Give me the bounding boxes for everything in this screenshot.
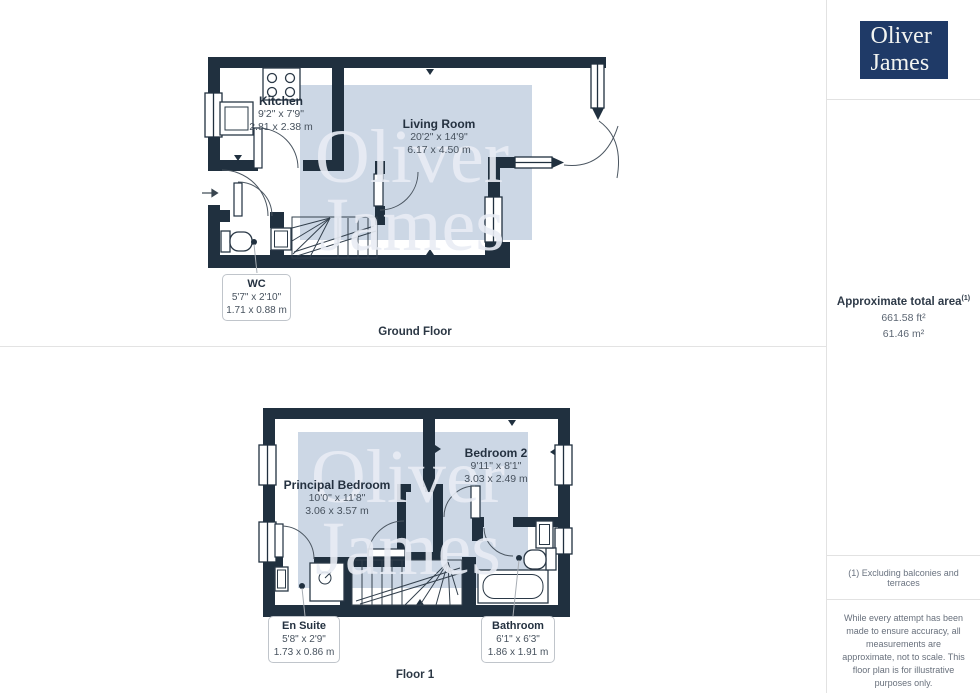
room-dim-metric: 2.81 x 2.38 m [211,121,351,134]
room-name: WC [223,278,290,291]
room-name: Principal Bedroom [267,478,407,492]
ensuite-callout: En Suite 5'8" x 2'9" 1.73 x 0.86 m [268,616,340,663]
room-dim-metric: 3.06 x 3.57 m [267,505,407,518]
room-dim-imperial: 5'7" x 2'10" [223,291,290,304]
total-area-title-text: Approximate total area [837,296,962,308]
wc-toilet-icon [221,231,252,252]
ground-floor-label: Ground Floor [325,326,505,338]
disclaimer-box: While every attempt has been made to ens… [827,600,980,693]
entry-arrow-icon [202,190,218,197]
bedroom2-label: Bedroom 2 9'11" x 8'1" 3.03 x 2.49 m [426,446,566,486]
logo-line1: Oliver [871,23,948,50]
logo-line2: James [871,50,948,77]
oliver-james-logo: Oliver James [860,21,948,79]
principal-bedroom-label: Principal Bedroom 10'0" x 11'8" 3.06 x 3… [267,478,407,518]
total-area-ft: 661.58 ft² [881,310,925,326]
room-name: Bathroom [482,620,554,633]
kitchen-label: Kitchen 9'2" x 7'9" 2.81 x 2.38 m [211,94,351,134]
total-area-title: Approximate total area(1) [837,291,970,310]
info-sidebar: Oliver James Approximate total area(1) 6… [826,0,980,693]
bathroom-callout: Bathroom 6'1" x 6'3" 1.86 x 1.91 m [481,616,555,663]
living-room-label: Living Room 20'2" x 14'9" 6.17 x 4.50 m [369,117,509,157]
ensuite-sink-icon [275,567,288,591]
room-name: En Suite [269,620,339,633]
room-dim-imperial: 9'2" x 7'9" [211,108,351,121]
total-area-box: Approximate total area(1) 661.58 ft² 61.… [827,100,980,346]
room-name: Living Room [369,117,509,131]
total-area-footnote-ref: (1) [962,295,971,302]
first-floor-label: Floor 1 [325,669,505,681]
bathroom-toilet-icon [524,548,556,570]
floorplan-page: Oliver James Oliver James Kitchen 9'2" x… [0,0,980,693]
sidebar-spacer [827,346,980,556]
svg-text:James: James [315,507,501,591]
room-dim-imperial: 5'8" x 2'9" [269,633,339,646]
room-dim-imperial: 9'11" x 8'1" [426,460,566,473]
room-dim-metric: 1.86 x 1.91 m [482,646,554,659]
floorplan-area: Oliver James Oliver James Kitchen 9'2" x… [0,0,826,693]
hall-basin-icon [271,228,291,250]
footnote-box: (1) Excluding balconies and terraces [827,556,980,600]
room-dim-metric: 1.73 x 0.86 m [269,646,339,659]
brand-logo-box: Oliver James [827,0,980,100]
room-name: Kitchen [211,94,351,108]
room-dim-metric: 3.03 x 2.49 m [426,473,566,486]
room-dim-metric: 1.71 x 0.88 m [223,304,290,317]
room-dim-imperial: 10'0" x 11'8" [267,492,407,505]
svg-text:James: James [319,183,505,267]
footnote-text: (1) Excluding balconies and terraces [827,568,980,588]
bathroom-sink-icon [536,521,553,548]
room-dim-imperial: 20'2" x 14'9" [369,131,509,144]
total-area-m: 61.46 m² [883,326,924,342]
wc-callout: WC 5'7" x 2'10" 1.71 x 0.88 m [222,274,291,321]
room-dim-imperial: 6'1" x 6'3" [482,633,554,646]
room-dim-metric: 6.17 x 4.50 m [369,144,509,157]
room-name: Bedroom 2 [426,446,566,460]
disclaimer-text: While every attempt has been made to ens… [839,612,968,690]
